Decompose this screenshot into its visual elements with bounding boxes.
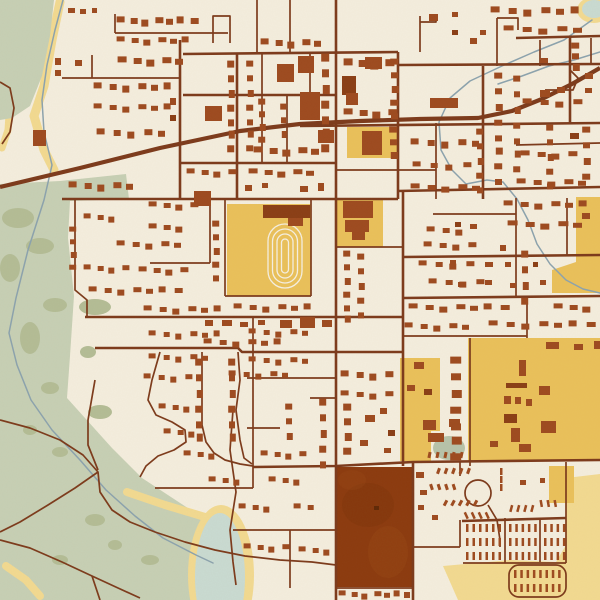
map-poster xyxy=(0,0,600,600)
city-map xyxy=(0,0,600,600)
paper-grain xyxy=(0,0,600,600)
grain-overlay xyxy=(0,0,600,600)
